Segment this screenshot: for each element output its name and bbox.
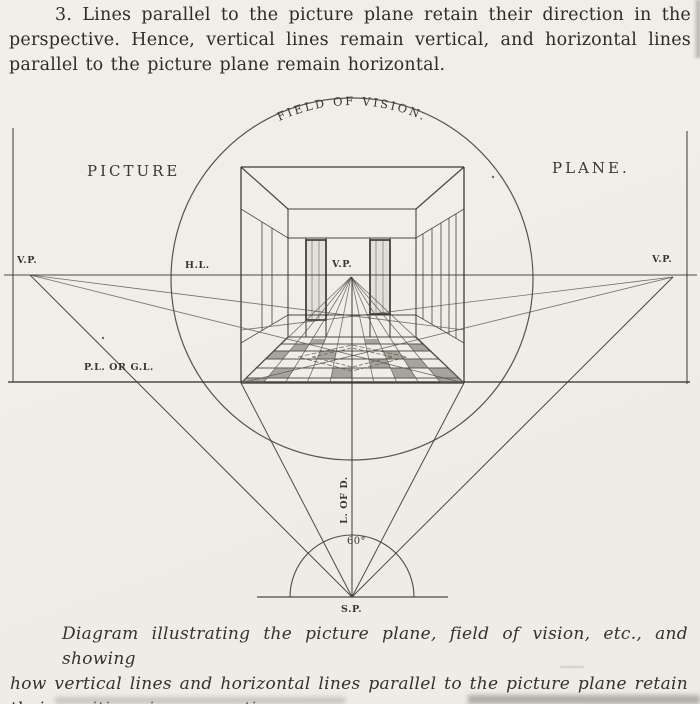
book-page: 3. Lines parallel to the picture plane r…: [0, 0, 700, 704]
vp-left-label: V.P.: [16, 255, 37, 266]
field-of-vision-label: FIELD OF VISION.: [275, 94, 429, 124]
vp-center-label: V.P.: [331, 259, 352, 270]
figure-caption: Diagram illustrating the picture plane, …: [10, 622, 688, 704]
line-of-direction-label: L. OF D.: [339, 476, 350, 524]
ground-line-label: P.L. OR G.L.: [84, 362, 154, 373]
page-edge-shadow-bottom: [468, 695, 700, 704]
caption-line: Diagram illustrating the picture plane, …: [10, 622, 688, 672]
scan-smudge: [560, 666, 584, 668]
picture-label: PICTURE: [87, 162, 180, 180]
page-edge-shadow-right: [693, 0, 700, 58]
vp-right-label: V.P.: [651, 254, 672, 265]
horizon-line-label: H.L.: [185, 260, 210, 271]
plane-label: PLANE.: [552, 159, 630, 177]
page-edge-shadow-bottom: [55, 697, 345, 704]
station-point-label: S.P.: [341, 604, 362, 615]
caption-line: how vertical lines and horizontal lines …: [10, 672, 688, 697]
perspective-diagram: FIELD OF VISION. PICTURE PLANE. V.P. H.L…: [0, 0, 700, 704]
cone-angle-label: 60°: [347, 536, 366, 547]
